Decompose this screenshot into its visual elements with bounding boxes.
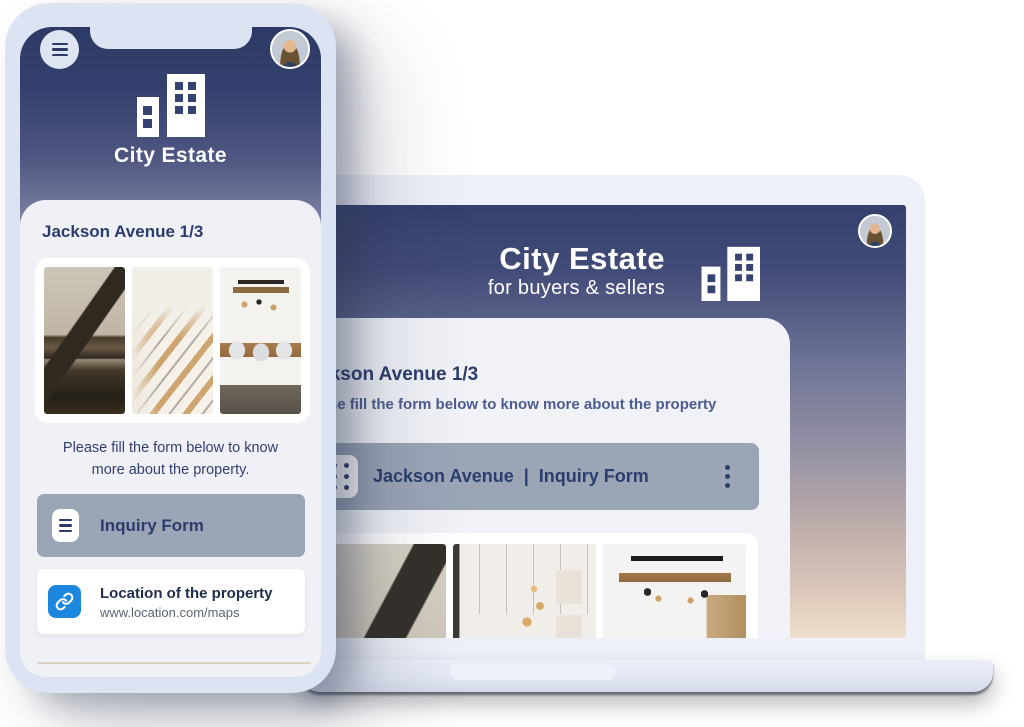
laptop-base-notch (450, 663, 616, 680)
laptop-screen: City Estate for buyers & sellers (260, 205, 906, 638)
inquiry-form-button[interactable]: Inquiry Form (37, 494, 305, 557)
big-building-icon (167, 74, 205, 137)
location-url: www.location.com/maps (100, 604, 273, 621)
small-building-icon (137, 97, 159, 137)
inquiry-bar-label: Jackson Avenue | Inquiry Form (373, 466, 649, 487)
listing-title: Jackson Avenue 1/3 (42, 222, 203, 242)
device-mockup-composition: City Estate for buyers & sellers (0, 0, 1024, 727)
buildings-logo-icon (702, 247, 760, 301)
user-avatar-photo (860, 216, 890, 246)
property-photo-house[interactable] (44, 267, 125, 414)
brand-title: City Estate (20, 144, 321, 168)
laptop-header: City Estate for buyers & sellers (360, 238, 760, 301)
property-panel: Jackson Avenue 1/3 Please fill the form … (270, 318, 790, 638)
link-icon (48, 585, 81, 618)
phone-screen: City Estate Jackson Avenue 1/3 Please fi… (20, 27, 321, 677)
property-photo-staircase[interactable] (132, 267, 213, 414)
small-building-icon (702, 267, 721, 301)
brand-block: City Estate for buyers & sellers (488, 243, 665, 301)
phone-logo (20, 74, 321, 137)
buildings-logo-icon (137, 74, 205, 137)
property-panel: Jackson Avenue 1/3 Please fill the form … (20, 200, 321, 677)
bar-label-left: Jackson Avenue (373, 466, 514, 487)
photo-gallery (292, 533, 758, 638)
location-title: Location of the property (100, 584, 273, 604)
laptop-base (300, 660, 993, 692)
avatar[interactable] (858, 214, 892, 248)
inquiry-button-label: Inquiry Form (100, 516, 204, 536)
location-link-card[interactable]: Location of the property www.location.co… (37, 569, 305, 634)
listing-helper-text: Please fill the form below to know more … (298, 396, 716, 413)
kebab-menu-icon[interactable] (717, 443, 737, 510)
brand-title: City Estate (488, 243, 665, 275)
helper-text-line2: more about the property. (20, 459, 321, 481)
bar-label-separator: | (524, 466, 529, 487)
phone-mockup: City Estate Jackson Avenue 1/3 Please fi… (5, 3, 336, 693)
inquiry-form-bar[interactable]: Jackson Avenue | Inquiry Form (307, 443, 759, 510)
phone-notch (90, 27, 252, 49)
hamburger-menu-button[interactable] (40, 30, 79, 69)
property-photo-dining[interactable] (220, 267, 301, 414)
brand-tagline: for buyers & sellers (488, 275, 665, 301)
property-photo-kitchen[interactable] (603, 544, 746, 638)
location-text-block: Location of the property www.location.co… (100, 584, 273, 621)
big-building-icon (727, 247, 760, 301)
user-avatar-photo (272, 31, 308, 67)
divider (37, 662, 311, 664)
helper-text-line1: Please fill the form below to know (20, 437, 321, 459)
avatar[interactable] (270, 29, 310, 69)
form-lines-icon (52, 509, 79, 542)
bar-label-right: Inquiry Form (539, 466, 649, 487)
photo-gallery (35, 258, 310, 423)
property-photo-hallway[interactable] (453, 544, 596, 638)
helper-text: Please fill the form below to know more … (20, 437, 321, 482)
laptop-screen-bezel: City Estate for buyers & sellers (248, 175, 925, 661)
